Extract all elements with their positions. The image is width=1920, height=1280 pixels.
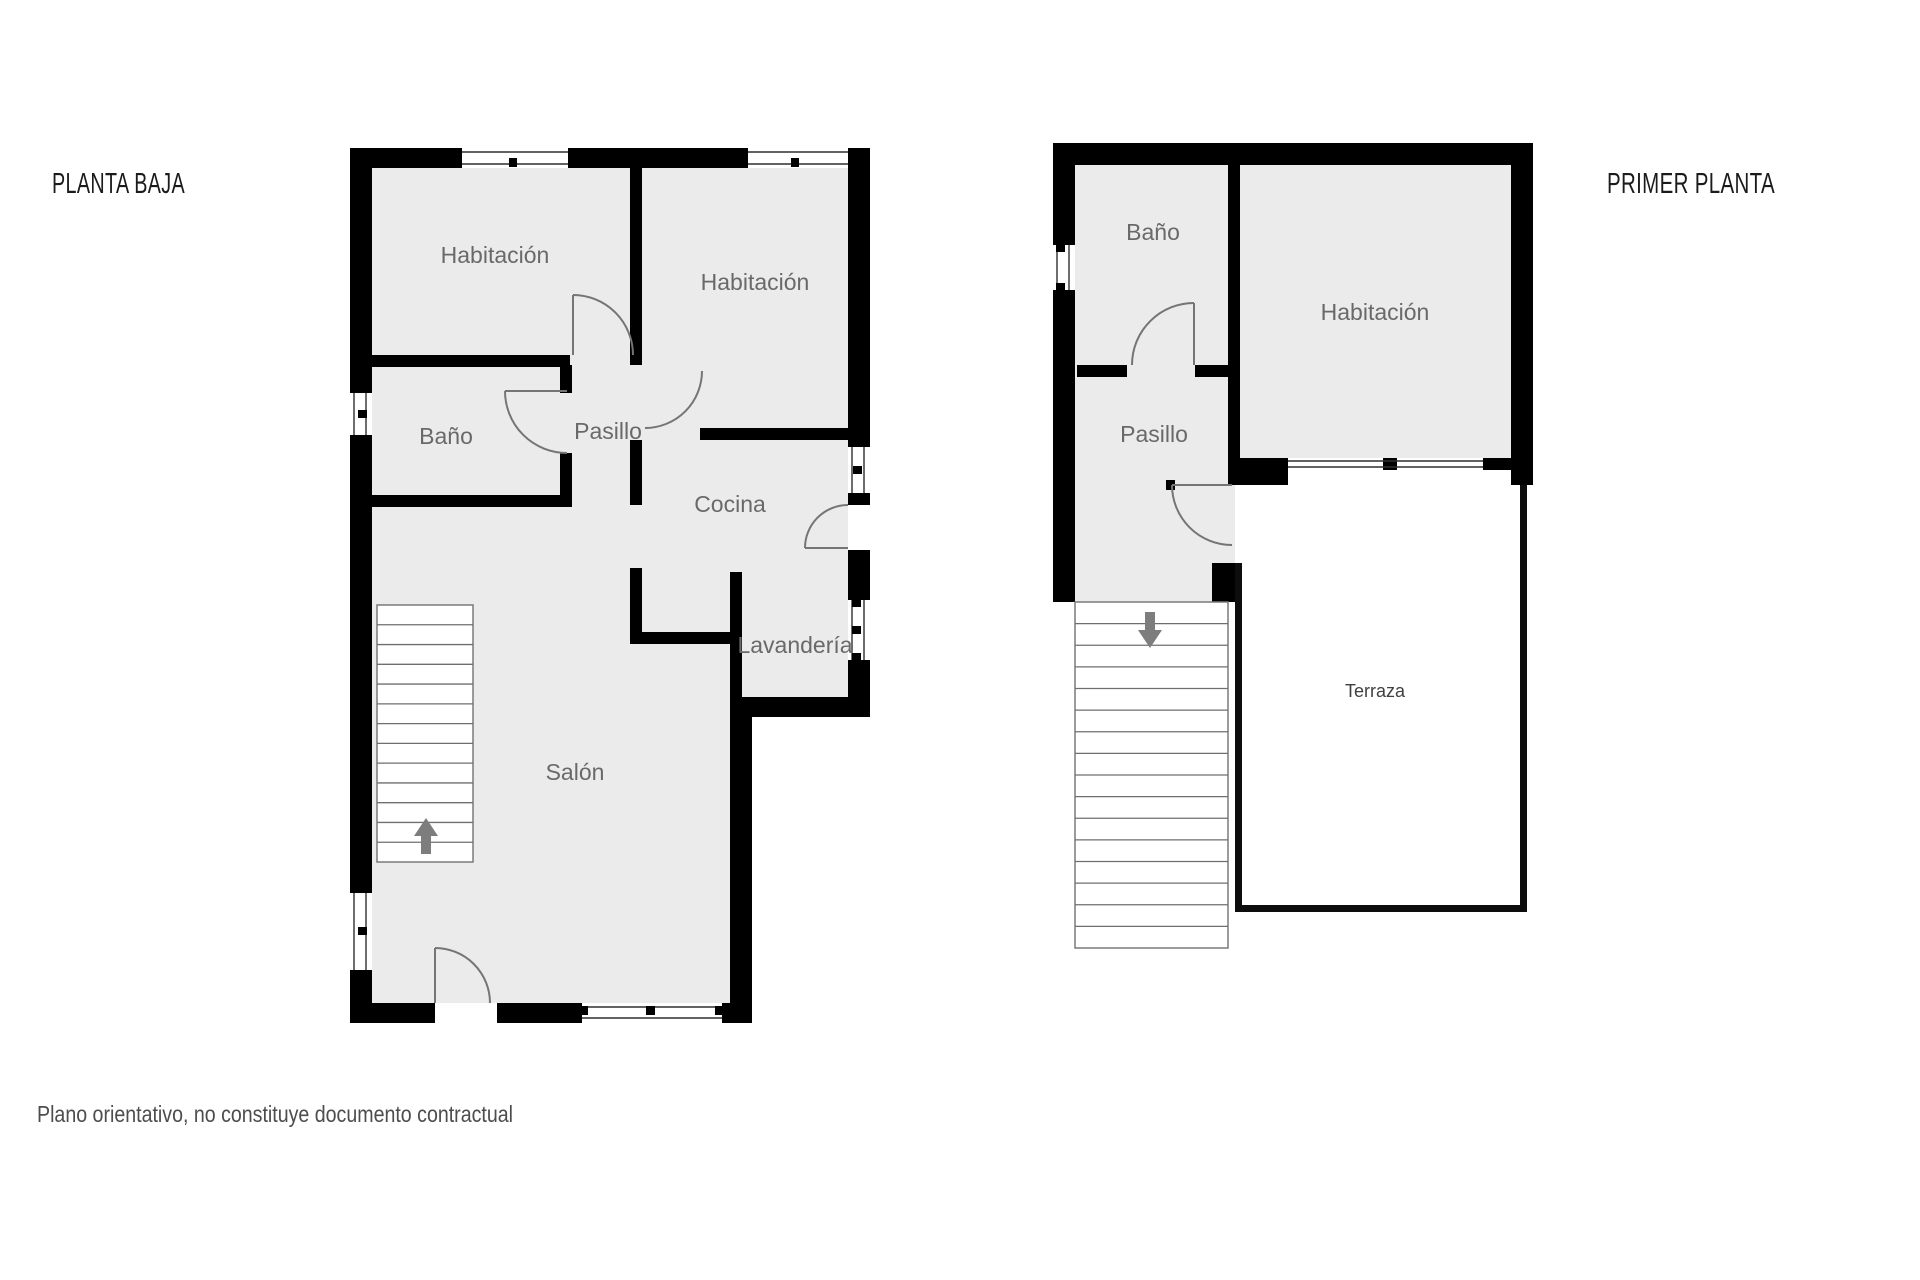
room-label-cocina: Cocina <box>694 491 766 517</box>
first-floor-plan: Baño Habitación Pasillo Terraza <box>1053 143 1533 948</box>
window-bedroom2-top <box>748 148 848 168</box>
room-label-habitacion-2: Habitación <box>701 269 810 295</box>
room-label-habitacion-1: Habitación <box>441 242 550 268</box>
room-label-bano-1: Baño <box>419 423 473 449</box>
room-label-salon: Salón <box>546 759 605 785</box>
room-label-bano-2: Baño <box>1126 219 1180 245</box>
window-living-left <box>350 893 372 970</box>
window-bathroom-left <box>350 393 372 435</box>
room-label-lavanderia: Lavandería <box>737 632 852 658</box>
disclaimer-text: Plano orientativo, no constituye documen… <box>37 1101 513 1127</box>
room-label-terraza: Terraza <box>1345 681 1406 701</box>
floor-plan-page: Habitación Habitación Baño Pasillo Cocin… <box>0 0 1920 1280</box>
room-label-pasillo-1: Pasillo <box>574 418 642 444</box>
window-bathroom2-left <box>1053 245 1075 290</box>
stairs-first-floor <box>1075 602 1228 948</box>
ground-floor-title: PLANTA BAJA <box>52 168 185 200</box>
room-label-pasillo-2: Pasillo <box>1120 421 1188 447</box>
ground-floor-plan: Habitación Habitación Baño Pasillo Cocin… <box>350 148 870 1023</box>
first-floor-title: PRIMER PLANTA <box>1607 168 1775 200</box>
window-bedroom1-top <box>462 148 568 168</box>
window-living-bottom <box>582 1003 722 1023</box>
window-kitchen-right <box>848 447 870 493</box>
room-label-habitacion-3: Habitación <box>1321 299 1430 325</box>
floor-plan-canvas: Habitación Habitación Baño Pasillo Cocin… <box>0 0 1920 1280</box>
